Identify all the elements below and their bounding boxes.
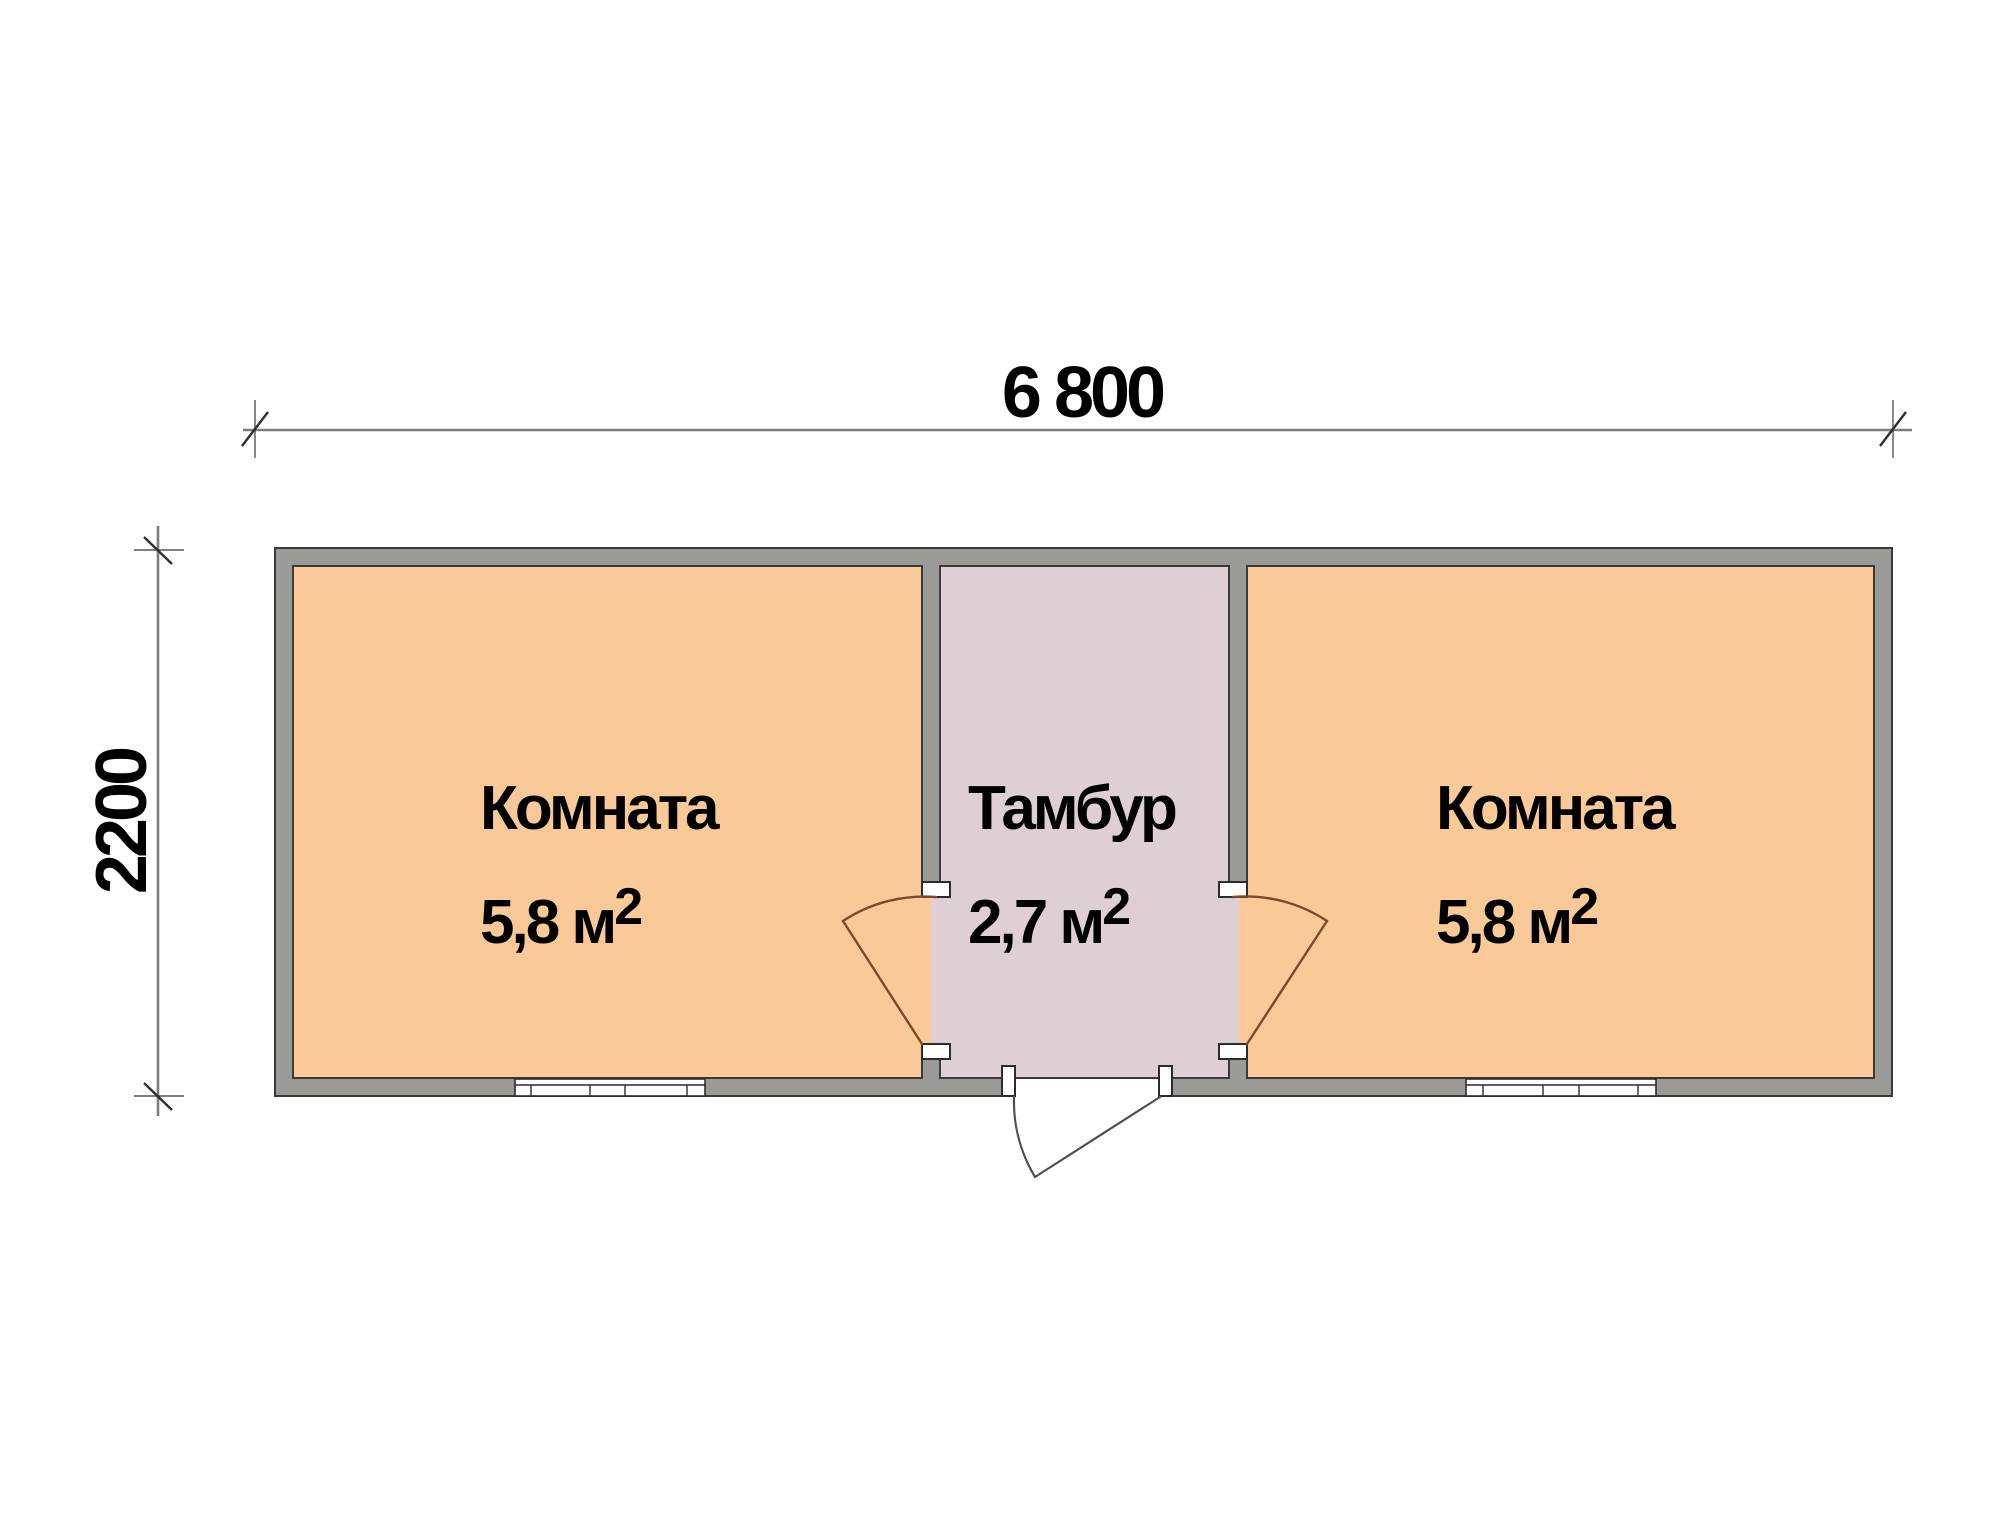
dimension-height-label: 2200 bbox=[86, 750, 158, 894]
room-left-name: Комната bbox=[480, 760, 717, 858]
floor-plan: 6 800 2200 Комната 5,8 м2 Тамбур 2,7 м2 … bbox=[0, 0, 2000, 1539]
room-left-area: 5,8 м2 bbox=[480, 858, 717, 972]
doorway-right-fill-room bbox=[1239, 898, 1249, 1044]
room-right-area: 5,8 м2 bbox=[1436, 858, 1673, 972]
vestibule-area-value: 2,7 м bbox=[968, 888, 1102, 957]
entrance-opening bbox=[1015, 1079, 1159, 1100]
window-left bbox=[515, 1079, 705, 1096]
entrance-jamb-right bbox=[1159, 1066, 1172, 1096]
door-jamb-left-top bbox=[922, 882, 950, 897]
room-right-area-value: 5,8 м bbox=[1436, 888, 1570, 957]
vestibule-label: Тамбур 2,7 м2 bbox=[968, 760, 1175, 972]
window-right bbox=[1466, 1079, 1656, 1096]
entrance-door-swing bbox=[1014, 1097, 1160, 1177]
window-left-frame bbox=[515, 1079, 705, 1096]
door-jamb-right-bottom bbox=[1219, 1044, 1247, 1059]
entrance-jamb-left bbox=[1002, 1066, 1015, 1096]
window-right-frame bbox=[1466, 1079, 1656, 1096]
door-jamb-left-bottom bbox=[922, 1044, 950, 1059]
doorway-right-fill-vestibule bbox=[1227, 898, 1239, 1044]
entrance-door-leaf bbox=[1035, 1097, 1160, 1177]
vestibule-area-sup: 2 bbox=[1102, 878, 1129, 936]
doorway-left-fill-vestibule bbox=[931, 898, 942, 1044]
room-left-label: Комната 5,8 м2 bbox=[480, 760, 717, 972]
entrance-door-arc bbox=[1014, 1097, 1035, 1177]
dimension-width-label: 6 800 bbox=[1002, 357, 1162, 429]
vestibule-name: Тамбур bbox=[968, 760, 1175, 858]
room-left-area-value: 5,8 м bbox=[480, 888, 614, 957]
room-right-area-sup: 2 bbox=[1570, 878, 1597, 936]
room-right-name: Комната bbox=[1436, 760, 1673, 858]
door-jamb-right-top bbox=[1219, 882, 1247, 897]
vestibule-area: 2,7 м2 bbox=[968, 858, 1175, 972]
room-left-area-sup: 2 bbox=[614, 878, 641, 936]
room-right-label: Комната 5,8 м2 bbox=[1436, 760, 1673, 972]
doorway-left-fill-room bbox=[919, 898, 931, 1044]
